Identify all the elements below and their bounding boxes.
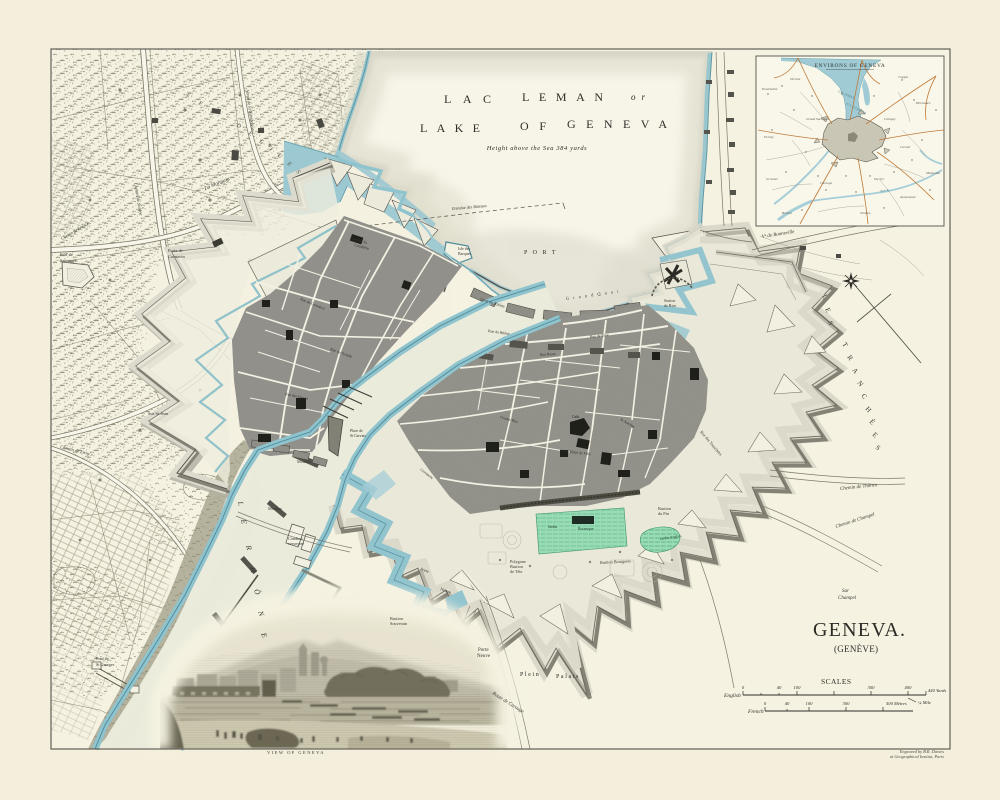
svg-text:¼ Mile: ¼ Mile	[918, 700, 931, 705]
svg-text:GENEVA.: GENEVA.	[813, 619, 905, 641]
svg-text:Corsier: Corsier	[900, 145, 911, 149]
svg-text:St Genis: St Genis	[766, 177, 778, 181]
svg-text:Neuve: Neuve	[477, 654, 491, 659]
svg-text:St Georges: St Georges	[96, 662, 115, 667]
svg-text:300: 300	[843, 701, 851, 706]
svg-text:440 Yards: 440 Yards	[928, 688, 946, 693]
svg-text:Ferney: Ferney	[763, 135, 774, 139]
svg-text:100: 100	[806, 701, 814, 706]
svg-text:Cologny: Cologny	[884, 117, 896, 121]
svg-text:English: English	[723, 693, 741, 699]
svg-text:40: 40	[777, 685, 782, 690]
svg-text:Moulins: Moulins	[297, 459, 311, 464]
svg-text:Cornavin: Cornavin	[168, 254, 185, 259]
svg-text:Jardin: Jardin	[548, 525, 557, 529]
svg-text:LAC: LAC	[444, 92, 491, 106]
svg-text:Place de: Place de	[350, 429, 363, 433]
svg-text:du Pin: du Pin	[658, 511, 670, 516]
svg-text:Monnetier: Monnetier	[925, 171, 941, 175]
svg-text:P O R T: P O R T	[524, 250, 558, 256]
svg-text:Bernex: Bernex	[782, 211, 792, 215]
svg-text:Moulins: Moulins	[268, 506, 282, 511]
svg-text:(GENÈVE): (GENÈVE)	[834, 644, 878, 654]
svg-text:Champel: Champel	[838, 596, 857, 601]
svg-text:400: 400	[905, 685, 913, 690]
svg-text:Porte: Porte	[478, 648, 489, 653]
svg-text:SCALES: SCALES	[821, 677, 851, 686]
svg-text:St Gervais: St Gervais	[350, 434, 366, 438]
svg-text:Plein: Plein	[520, 672, 540, 678]
svg-text:500 Mètres: 500 Mètres	[886, 701, 907, 706]
svg-text:Pontrenthe: Pontrenthe	[761, 87, 778, 91]
svg-text:Souverain: Souverain	[390, 621, 408, 626]
svg-text:Pont de: Pont de	[96, 656, 109, 661]
svg-text:French: French	[747, 709, 764, 715]
svg-text:Barques: Barques	[458, 251, 472, 256]
svg-text:Versoix: Versoix	[790, 77, 801, 81]
svg-text:VIEW OF GENEVA: VIEW OF GENEVA	[267, 750, 325, 755]
svg-text:Fort de: Fort de	[60, 252, 73, 257]
svg-text:Height above the Sea 384 yards: Height above the Sea 384 yards	[486, 145, 588, 152]
svg-text:300: 300	[868, 685, 876, 690]
svg-text:Annemasse: Annemasse	[899, 195, 916, 199]
svg-text:Sarconex: Sarconex	[60, 258, 77, 263]
svg-text:Hermance: Hermance	[915, 101, 931, 105]
svg-text:Botanique: Botanique	[578, 527, 594, 531]
svg-text:Carouge: Carouge	[820, 181, 833, 185]
svg-text:Troinex: Troinex	[860, 211, 871, 215]
svg-text:ENVIRONS OF GENEVA: ENVIRONS OF GENEVA	[815, 63, 886, 69]
svg-text:Veyrier: Veyrier	[874, 177, 885, 181]
svg-text:de Tête: de Tête	[510, 569, 523, 574]
svg-text:Palais: Palais	[556, 674, 580, 680]
svg-text:Sur: Sur	[842, 589, 849, 594]
svg-text:versoyere: versoyere	[288, 541, 304, 546]
svg-text:Grand Sacconex: Grand Sacconex	[806, 117, 830, 121]
svg-text:Coppet: Coppet	[898, 75, 909, 79]
svg-text:Sur St Jean: Sur St Jean	[148, 411, 169, 416]
svg-text:Porte de: Porte de	[168, 248, 183, 253]
svg-text:100: 100	[794, 685, 802, 690]
svg-text:de Rive: de Rive	[664, 303, 677, 308]
svg-text:40: 40	[785, 701, 790, 706]
svg-text:Cath.: Cath.	[572, 415, 580, 419]
